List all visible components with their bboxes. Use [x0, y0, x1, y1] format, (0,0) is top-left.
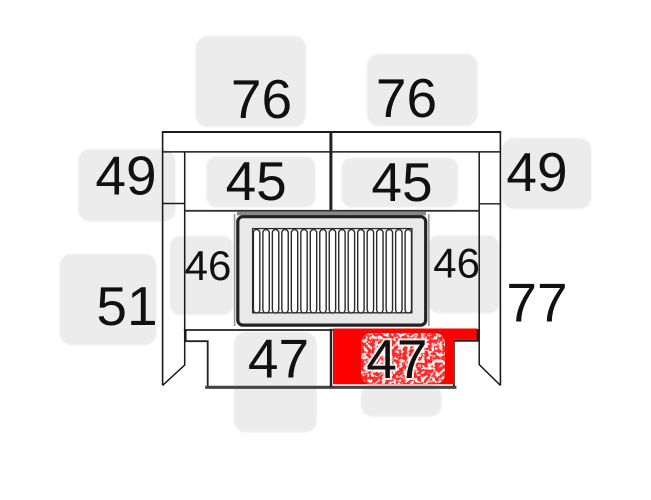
svg-text:77: 77	[506, 271, 567, 333]
svg-text:46: 46	[433, 240, 480, 287]
svg-text:49: 49	[95, 145, 156, 207]
svg-text:47: 47	[366, 328, 427, 390]
svg-text:46: 46	[185, 242, 232, 289]
svg-text:47: 47	[248, 328, 309, 390]
svg-text:76: 76	[376, 67, 437, 129]
svg-text:45: 45	[226, 150, 287, 212]
svg-text:51: 51	[96, 275, 157, 337]
svg-text:45: 45	[371, 151, 432, 213]
svg-text:76: 76	[231, 68, 292, 130]
svg-text:49: 49	[506, 141, 567, 203]
